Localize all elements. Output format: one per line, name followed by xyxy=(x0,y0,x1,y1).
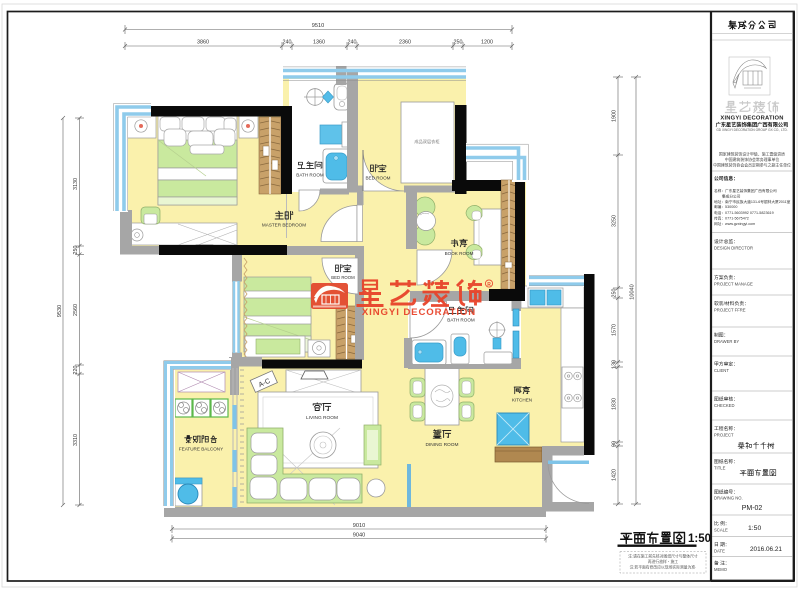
svg-text:2560: 2560 xyxy=(73,304,79,316)
svg-text:再进行放样・施工: 再进行放样・施工 xyxy=(648,559,679,564)
svg-text:图纸名称：: 图纸名称： xyxy=(714,458,738,465)
svg-text:9530: 9530 xyxy=(57,305,63,317)
svg-text:传真：0771-5675472: 传真：0771-5675472 xyxy=(714,216,749,221)
svg-text:甲方审定：: 甲方审定： xyxy=(714,361,738,368)
svg-text:邮编：530000: 邮编：530000 xyxy=(714,204,737,209)
svg-text:CLIENT: CLIENT xyxy=(714,368,729,373)
svg-text:2016.06.21: 2016.06.21 xyxy=(750,546,782,553)
svg-text:1:50: 1:50 xyxy=(688,533,711,545)
svg-text:软装/材料负责：: 软装/材料负责： xyxy=(714,300,749,307)
svg-text:注:若平面有修改应以现场实际测量为准·: 注:若平面有修改应以现场实际测量为准· xyxy=(630,565,697,570)
svg-text:3310: 3310 xyxy=(73,434,79,446)
svg-text:1830: 1830 xyxy=(612,398,618,410)
svg-text:LIVING ROOM: LIVING ROOM xyxy=(306,415,338,421)
svg-text:BED ROOM: BED ROOM xyxy=(365,176,390,181)
svg-text:BATH ROOM: BATH ROOM xyxy=(296,173,324,178)
svg-text:250: 250 xyxy=(612,289,618,298)
svg-text:TITLE: TITLE xyxy=(714,466,726,471)
svg-text:名称：广东星艺装饰集团广西有限公司: 名称：广东星艺装饰集团广西有限公司 xyxy=(714,188,777,193)
svg-text:1900: 1900 xyxy=(612,110,618,122)
svg-text:制图：: 制图： xyxy=(714,332,728,339)
svg-text:成品双层衣柜: 成品双层衣柜 xyxy=(414,138,439,145)
svg-text:2360: 2360 xyxy=(399,40,411,46)
svg-text:公司信息：: 公司信息： xyxy=(714,175,738,182)
svg-text:中国建筑装饰协会常务理事单位: 中国建筑装饰协会常务理事单位 xyxy=(725,157,780,162)
svg-text:10040: 10040 xyxy=(630,284,636,300)
svg-text:250: 250 xyxy=(73,246,79,255)
svg-text:DRAWING NO.: DRAWING NO. xyxy=(714,496,743,501)
svg-text:DINING ROOM: DINING ROOM xyxy=(425,442,458,448)
svg-text:220: 220 xyxy=(73,366,79,375)
svg-text:3250: 3250 xyxy=(612,215,618,227)
svg-text:集成分公司: 集成分公司 xyxy=(722,194,741,199)
svg-text:地址：南宁市民族大道131-6号银林大厦2011室: 地址：南宁市民族大道131-6号银林大厦2011室 xyxy=(714,199,791,204)
svg-text:240: 240 xyxy=(283,40,292,46)
svg-text:SCALE: SCALE xyxy=(714,528,728,533)
svg-text:日 期：: 日 期： xyxy=(714,542,730,548)
svg-text:1360: 1360 xyxy=(313,40,325,46)
svg-text:FEATURE BALCONY: FEATURE BALCONY xyxy=(179,447,223,452)
svg-text:9040: 9040 xyxy=(353,533,365,539)
svg-text:DATE: DATE xyxy=(714,549,725,554)
svg-text:90: 90 xyxy=(612,441,618,447)
svg-text:比 例：: 比 例： xyxy=(714,520,730,527)
svg-text:PROJECT MANAGE: PROJECT MANAGE xyxy=(714,282,753,287)
svg-text:中国建筑装饰协会会员定期参与之副主任单位: 中国建筑装饰协会会员定期参与之副主任单位 xyxy=(713,163,791,168)
svg-text:方案负责：: 方案负责： xyxy=(714,274,738,281)
svg-text:备 注：: 备 注： xyxy=(714,560,730,567)
svg-text:1420: 1420 xyxy=(612,469,618,481)
svg-text:KITCHEN: KITCHEN xyxy=(512,398,532,403)
svg-text:XINGYI DECORATION: XINGYI DECORATION xyxy=(362,307,476,318)
svg-text:DRAWER BY: DRAWER BY xyxy=(714,339,739,344)
svg-text:MASTER BEDROOM: MASTER BEDROOM xyxy=(262,223,306,228)
svg-text:PROJECT FFRE: PROJECT FFRE xyxy=(714,308,746,313)
svg-text:3860: 3860 xyxy=(197,40,209,46)
svg-text:240: 240 xyxy=(348,40,357,46)
svg-text:R: R xyxy=(487,282,491,288)
svg-text:250: 250 xyxy=(454,40,463,46)
svg-text:1200: 1200 xyxy=(481,40,493,46)
svg-text:设计总监：: 设计总监： xyxy=(714,238,738,245)
svg-text:9510: 9510 xyxy=(312,23,324,29)
svg-text:注:请在施工前先核对图纸尺寸与整体尺寸: 注:请在施工前先核对图纸尺寸与整体尺寸 xyxy=(628,554,698,559)
svg-text:BATH ROOM: BATH ROOM xyxy=(447,318,475,323)
svg-text:电话：0771-5603992 0771-5823619: 电话：0771-5603992 0771-5823619 xyxy=(714,210,774,215)
svg-text:PROJECT: PROJECT xyxy=(714,433,734,438)
svg-text:XINGYI DECORATION: XINGYI DECORATION xyxy=(720,116,783,122)
svg-text:130: 130 xyxy=(612,360,618,369)
svg-text:3130: 3130 xyxy=(73,178,79,190)
svg-text:图纸审核：: 图纸审核： xyxy=(714,396,738,403)
svg-text:MEMO: MEMO xyxy=(714,567,728,572)
svg-text:工程名称：: 工程名称： xyxy=(714,425,738,432)
svg-text:DESIGN DIRECTOR: DESIGN DIRECTOR xyxy=(714,246,753,251)
svg-text:网址：www.gzxingyi.com: 网址：www.gzxingyi.com xyxy=(714,221,755,226)
svg-text:图纸编号：: 图纸编号： xyxy=(714,489,738,496)
svg-text:GD XINGYI DECORATION GROUP GX: GD XINGYI DECORATION GROUP GX CO., LTD. xyxy=(716,128,787,132)
svg-text:1:50: 1:50 xyxy=(748,525,761,532)
svg-text:BED ROOM: BED ROOM xyxy=(331,275,355,280)
svg-text:9010: 9010 xyxy=(353,523,365,529)
svg-text:BOOK ROOM: BOOK ROOM xyxy=(445,251,474,256)
svg-text:国家建筑装饰设计甲级、施工壹级资质: 国家建筑装饰设计甲级、施工壹级资质 xyxy=(719,152,785,157)
svg-text:CHECKED: CHECKED xyxy=(714,403,734,408)
svg-text:PM-02: PM-02 xyxy=(742,505,763,512)
svg-text:1570: 1570 xyxy=(612,324,618,336)
